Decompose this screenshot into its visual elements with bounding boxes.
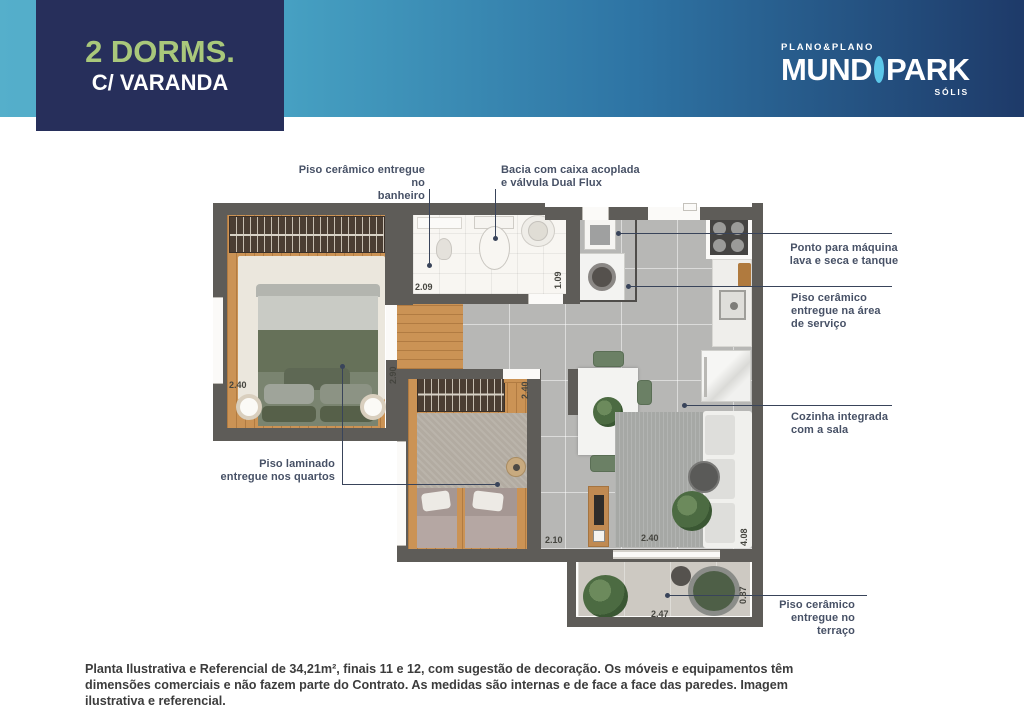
measurement-label: 2.47 (651, 610, 669, 619)
measurement-label: 2.10 (545, 536, 563, 545)
callout-line (429, 189, 430, 265)
measurement-label: 2.09 (415, 283, 433, 292)
callout-label: Piso cerâmico entregue na área de serviç… (791, 292, 911, 332)
callout-dot (616, 231, 621, 236)
measurement-label: 1.09 (554, 271, 563, 289)
callout-dot (340, 364, 345, 369)
measurement-label: 2.40 (641, 534, 659, 543)
callout-label: Ponto para máquina lava e seca e tanque (786, 242, 902, 268)
callout-dot (493, 236, 498, 241)
callout-line (667, 595, 867, 596)
callout-line (342, 484, 497, 485)
measurement-label: 2.90 (389, 366, 398, 384)
callout-label: Cozinha integrada com a sala (791, 411, 911, 437)
callout-line (342, 366, 343, 484)
callout-dot (495, 482, 500, 487)
measurement-label: 2.40 (229, 381, 247, 390)
callout-label: Piso laminado entregue nos quartos (200, 458, 335, 484)
floor-plan: Piso cerâmico entregue no banheiroBacia … (0, 0, 1024, 725)
callout-dot (427, 263, 432, 268)
callout-label: Bacia com caixa acoplada e válvula Dual … (501, 164, 656, 190)
callout-dot (626, 284, 631, 289)
plan-annotations: Piso cerâmico entregue no banheiroBacia … (0, 0, 1024, 725)
measurement-label: 0.87 (739, 586, 748, 604)
callout-line (684, 405, 892, 406)
disclaimer-text: Planta Ilustrativa e Referencial de 34,2… (85, 661, 807, 709)
measurement-label: 4.08 (740, 528, 749, 546)
callout-label: Piso cerâmico entregue no terraço (745, 599, 855, 639)
callout-line (618, 233, 892, 234)
callout-dot (682, 403, 687, 408)
callout-line (628, 286, 892, 287)
page: 2 DORMS. C/ VARANDA PLANO&PLANO MUND PAR… (0, 0, 1024, 725)
callout-dot (665, 593, 670, 598)
measurement-label: 2.40 (521, 381, 530, 399)
callout-line (495, 189, 496, 238)
callout-label: Piso cerâmico entregue no banheiro (285, 164, 425, 204)
